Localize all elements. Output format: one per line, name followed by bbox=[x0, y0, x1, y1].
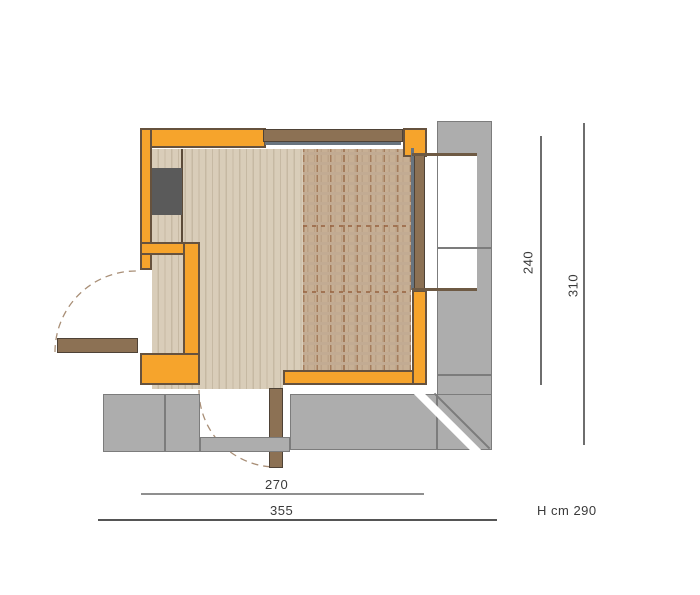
dimension-line-240 bbox=[540, 136, 542, 385]
pier-joint bbox=[437, 247, 492, 249]
concrete-strip-under-door bbox=[200, 437, 290, 452]
top-window-band bbox=[263, 129, 403, 142]
dimension-line-270 bbox=[141, 493, 424, 495]
plinth-joint bbox=[164, 395, 166, 451]
right-wall-lower bbox=[412, 290, 427, 385]
dimension-label-355: 355 bbox=[270, 503, 293, 518]
dimension-label-270: 270 bbox=[265, 477, 288, 492]
service-door-arc bbox=[199, 390, 276, 467]
dimension-line-355 bbox=[98, 519, 497, 521]
dimension-label-310: 310 bbox=[566, 272, 581, 300]
dimension-line-310 bbox=[583, 123, 585, 445]
window-frame-track-bottom bbox=[412, 288, 477, 291]
pier-joint bbox=[437, 374, 492, 376]
right-window-sill bbox=[414, 153, 425, 290]
top-window-glazing bbox=[265, 142, 401, 145]
height-note: H cm 290 bbox=[537, 503, 597, 518]
service-door-leaf bbox=[269, 388, 283, 468]
window-pocket-opening bbox=[438, 155, 477, 288]
window-frame-track-top bbox=[412, 153, 477, 156]
bottom-wall-right bbox=[283, 370, 427, 385]
entry-door-leaf bbox=[57, 338, 138, 353]
top-wall-left bbox=[140, 128, 266, 148]
dimension-label-240: 240 bbox=[521, 249, 536, 277]
floor-plan-canvas: 270 355 240 310 H cm 290 bbox=[0, 0, 700, 595]
concrete-plinth-left bbox=[103, 394, 200, 452]
bottom-wall-left bbox=[140, 353, 200, 385]
concrete-plinth-bottom bbox=[290, 394, 437, 450]
